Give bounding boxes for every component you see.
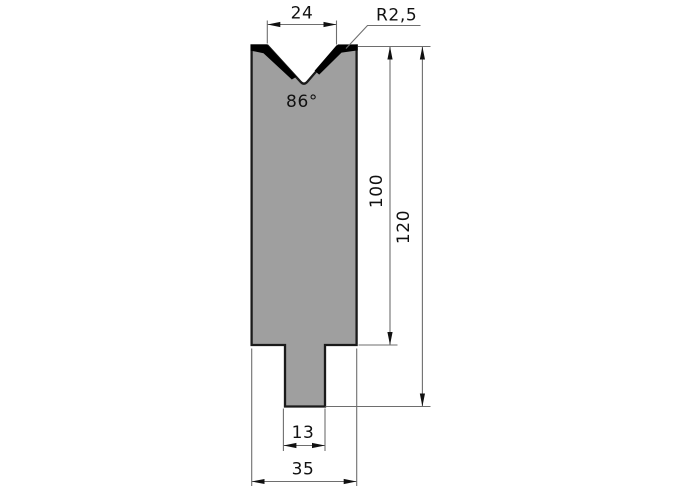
dim-120-label: 120 [394,210,414,244]
dim-24-label: 24 [291,4,314,24]
drawing-canvas: 24 R2,5 86° 100 120 13 35 [0,0,680,490]
dim-13-label: 13 [292,423,315,443]
radius-label: R2,5 [376,6,417,26]
dim-35-label: 35 [292,460,315,480]
dimension-24 [267,21,336,45]
technical-drawing: 24 R2,5 86° 100 120 13 35 [0,0,680,490]
dim-100-label: 100 [367,174,387,208]
angle-label: 86° [286,92,318,112]
